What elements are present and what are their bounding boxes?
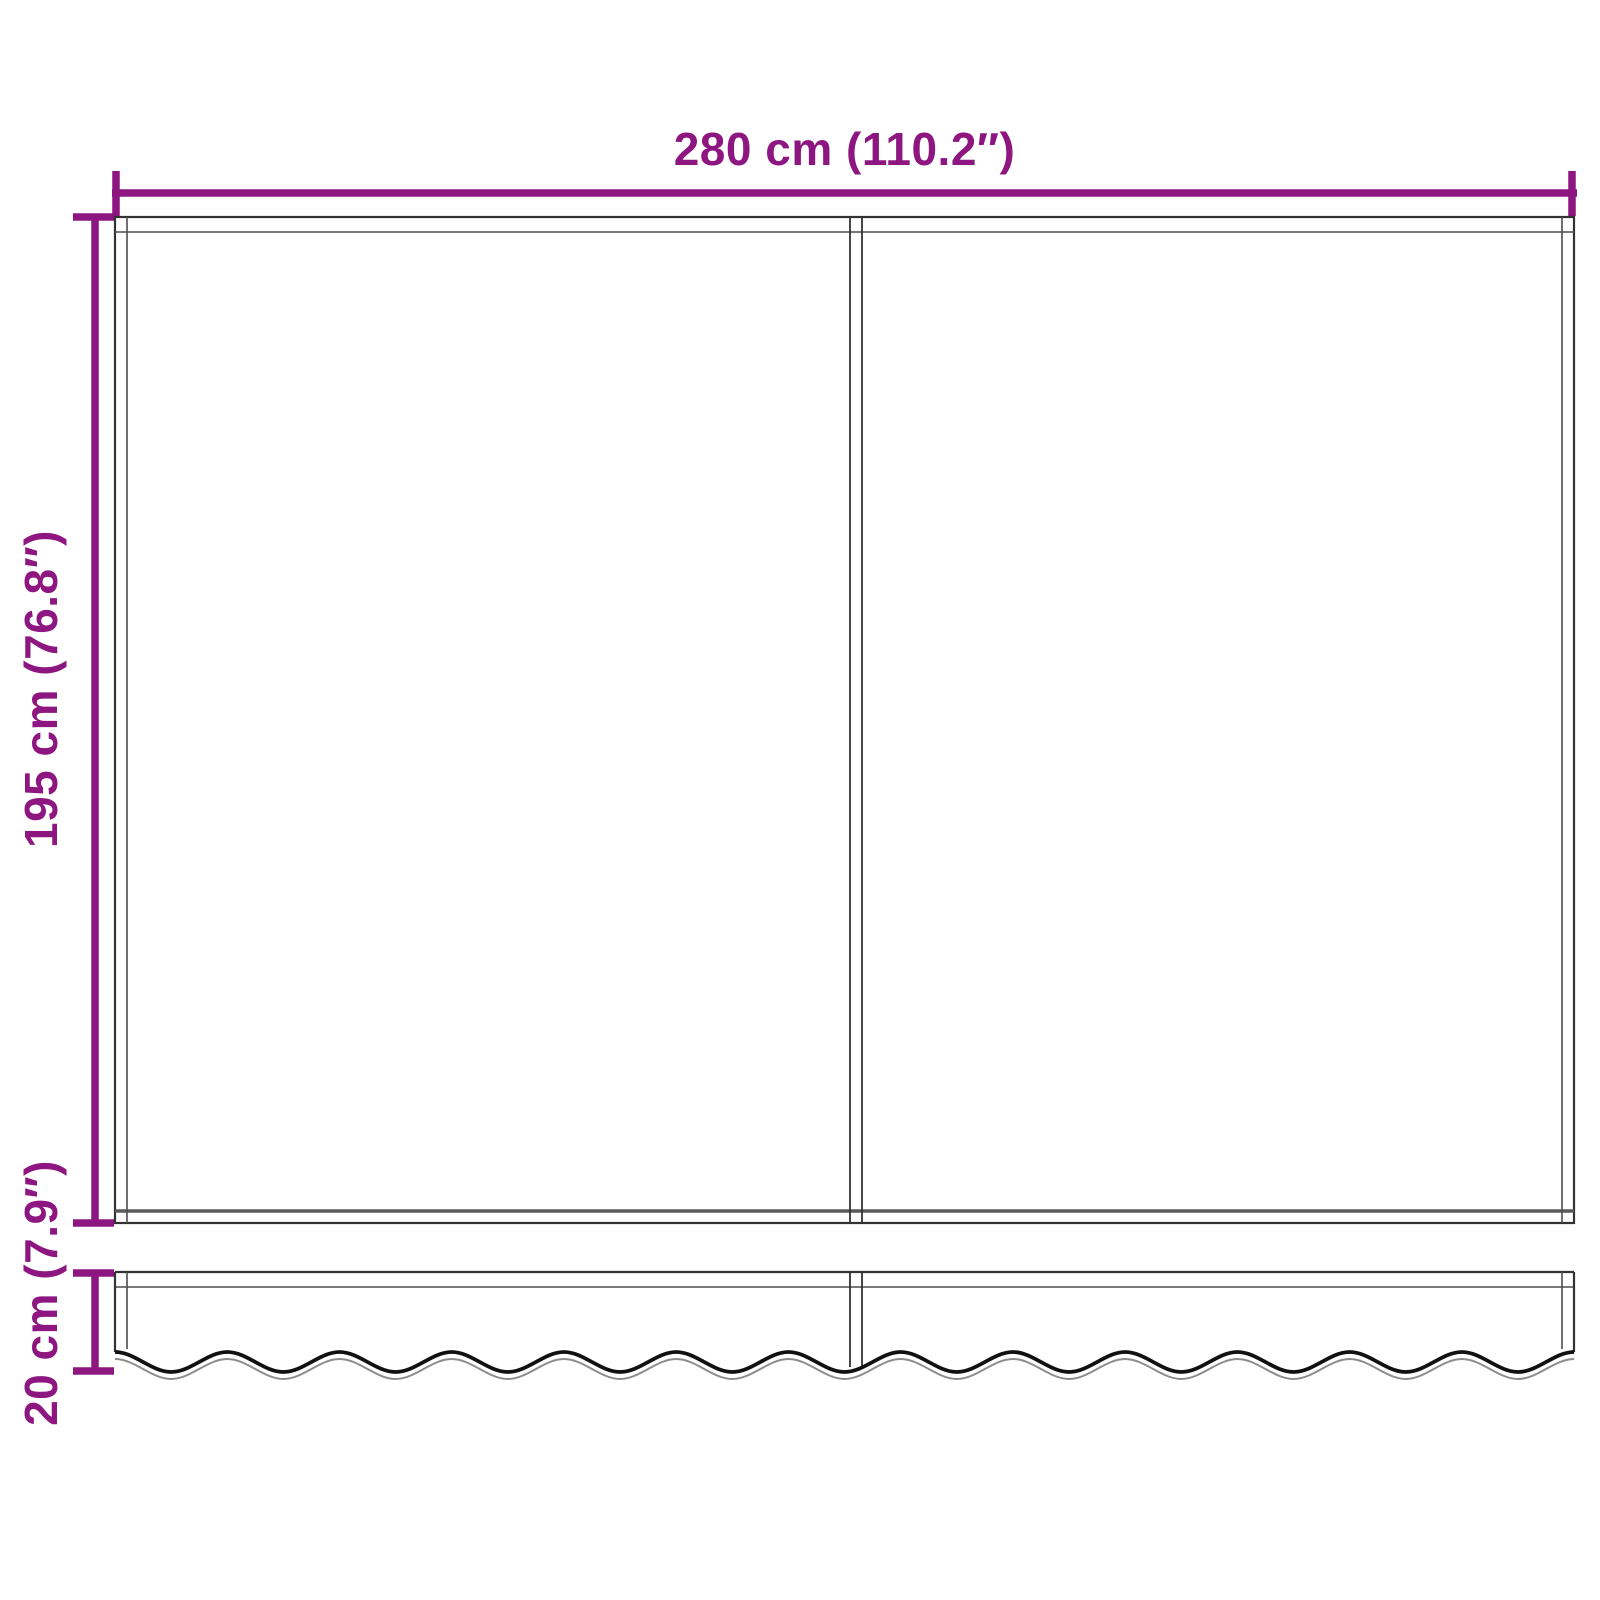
awning-fabric-dimension-diagram: 280 cm (110.2″) 195 cm (76.8″) 20 cm (7.… [0,0,1600,1600]
valance-strip [115,1272,1574,1379]
height-dimension-label: 195 cm (76.8″) [14,530,68,848]
valance-height-dimension-line [73,1272,114,1372]
diagram-drawing [0,0,1600,1600]
valance-height-label: 20 cm (7.9″) [14,1160,68,1426]
width-dimension-line [112,171,1577,216]
height-dimension-line [73,215,114,1225]
valance-scallop-shadow [115,1359,1574,1379]
awning-fabric-panel [115,217,1574,1223]
valance-scallop-edge [115,1352,1574,1372]
width-dimension-label: 280 cm (110.2″) [115,122,1574,176]
